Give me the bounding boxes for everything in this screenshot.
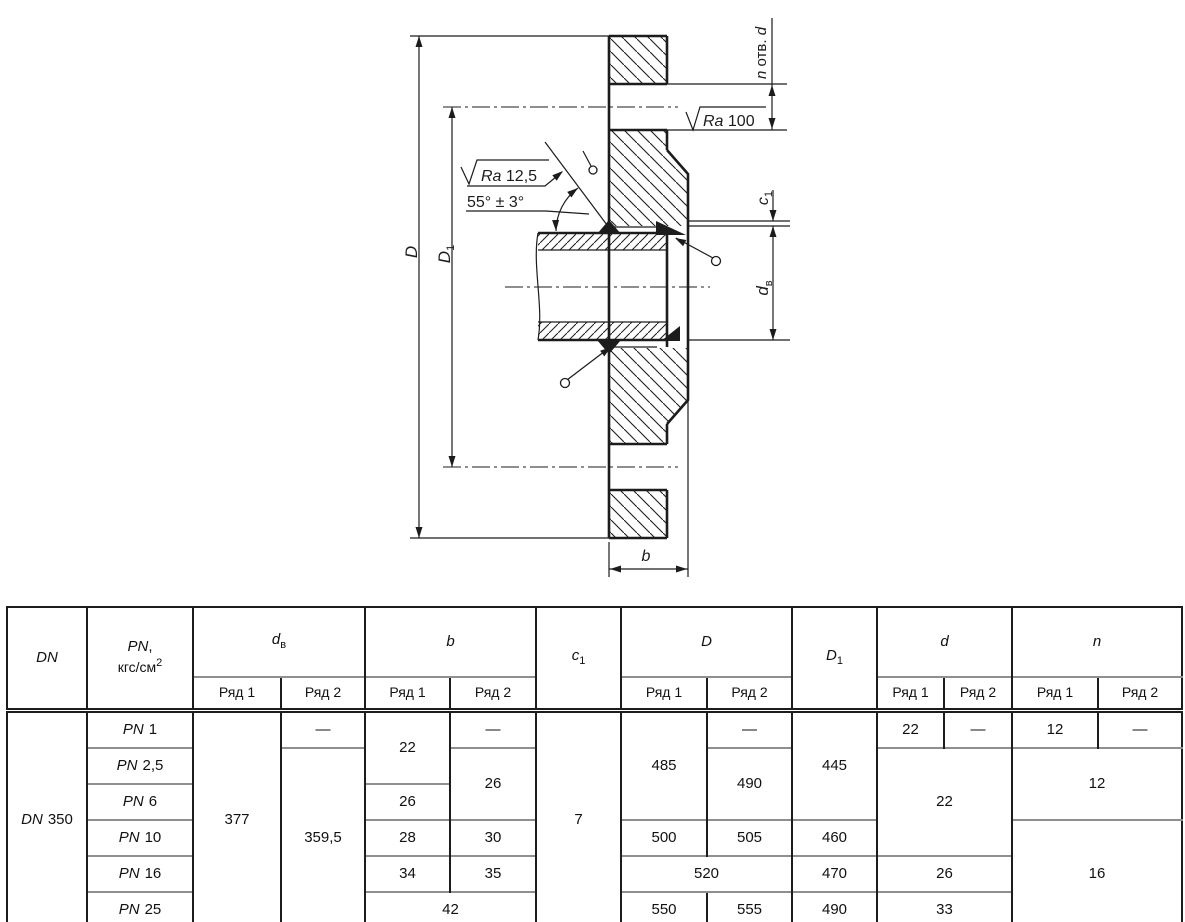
- col-header-pn: PN,кгс/см2: [87, 607, 193, 711]
- cell-pn: PN2,5: [87, 748, 193, 784]
- cell-n-r1: 12: [1012, 711, 1098, 749]
- dim-label-dv: dв: [753, 280, 775, 295]
- subheader-D-ryad1: Ряд 1: [621, 677, 707, 711]
- table-row: DN350 PN1 377 — 22 — 7 485 — 445 22 — 12…: [7, 711, 1182, 749]
- cell-D-r2: 555: [707, 892, 792, 922]
- subheader-d-ryad2: Ряд 2: [944, 677, 1012, 711]
- cell-D1: 460: [792, 820, 877, 856]
- col-header-D1: D1: [792, 607, 877, 711]
- cell-c1: 7: [536, 711, 621, 922]
- cell-pn: PN16: [87, 856, 193, 892]
- subheader-n-ryad1: Ряд 1: [1012, 677, 1098, 711]
- cell-b-r1: 34: [365, 856, 450, 892]
- col-header-c1: c1: [536, 607, 621, 711]
- cell-b-r2: —: [450, 711, 536, 749]
- cell-D-r2: —: [707, 711, 792, 749]
- flange-section-drawing: D D1 n отв. d Ra 100 Ra 12,5 55° ± 3° c1…: [0, 0, 1185, 602]
- col-header-n: n: [1012, 607, 1182, 677]
- bevel-angle-label: 55° ± 3°: [467, 194, 524, 211]
- cell-b-r2: 30: [450, 820, 536, 856]
- cell-dv-r2: 359,5: [281, 748, 365, 922]
- cell-b-r2: 35: [450, 856, 536, 892]
- cell-b-r1: 22: [365, 711, 450, 785]
- subheader-dv-ryad2: Ряд 2: [281, 677, 365, 711]
- cell-D1: 445: [792, 711, 877, 821]
- table-wrapper: DN PN,кгс/см2 dв b c1 D D1 d n Ряд 1 Ряд…: [6, 606, 1183, 922]
- standard-page: D D1 n отв. d Ra 100 Ra 12,5 55° ± 3° c1…: [0, 0, 1185, 922]
- cell-D1: 490: [792, 892, 877, 922]
- subheader-b-ryad2: Ряд 2: [450, 677, 536, 711]
- col-header-b: b: [365, 607, 536, 677]
- subheader-n-ryad2: Ряд 2: [1098, 677, 1182, 711]
- cell-pn: PN6: [87, 784, 193, 820]
- cell-n: 12: [1012, 748, 1182, 820]
- cell-b-r1: 26: [365, 784, 450, 820]
- cell-D-r2: 505: [707, 820, 792, 856]
- flange-hatching: [609, 36, 688, 538]
- cell-d: 33: [877, 892, 1012, 922]
- cell-pn: PN10: [87, 820, 193, 856]
- dim-label-D1: D1: [435, 245, 457, 263]
- cell-D: 520: [621, 856, 792, 892]
- subheader-d-ryad1: Ряд 1: [877, 677, 944, 711]
- cell-dv-r2: —: [281, 711, 365, 749]
- cell-D-r2: 490: [707, 748, 792, 820]
- col-header-D: D: [621, 607, 792, 677]
- cell-pn: PN25: [87, 892, 193, 922]
- col-header-dn: DN: [7, 607, 87, 711]
- cell-D-r1: 550: [621, 892, 707, 922]
- cell-b-r1: 28: [365, 820, 450, 856]
- cell-D-r1: 500: [621, 820, 707, 856]
- roughness-label-ra100: Ra 100: [703, 113, 755, 130]
- cell-pn: PN1: [87, 711, 193, 749]
- dim-label-b: b: [642, 548, 651, 565]
- dim-label-D: D: [402, 246, 421, 258]
- cell-d: 26: [877, 856, 1012, 892]
- cell-n: 16: [1012, 820, 1182, 922]
- cell-dn: DN350: [7, 711, 87, 922]
- dim-label-c1: c1: [755, 191, 775, 205]
- subheader-dv-ryad1: Ряд 1: [193, 677, 281, 711]
- roughness-label-ra125: Ra 12,5: [481, 168, 537, 185]
- flange-dimensions-table: DN PN,кгс/см2 dв b c1 D D1 d n Ряд 1 Ряд…: [6, 606, 1183, 922]
- cell-b: 42: [365, 892, 536, 922]
- cell-n-r2: —: [1098, 711, 1182, 749]
- cell-d-r1: 22: [877, 711, 944, 749]
- subheader-b-ryad1: Ряд 1: [365, 677, 450, 711]
- cell-dv-r1: 377: [193, 711, 281, 922]
- thin-lines: [410, 18, 790, 577]
- cell-d-r2: —: [944, 711, 1012, 749]
- dim-label-n-holes-d: n отв. d: [753, 26, 770, 79]
- subheader-D-ryad2: Ряд 2: [707, 677, 792, 711]
- cell-b-r2: 26: [450, 748, 536, 820]
- col-header-d: d: [877, 607, 1012, 677]
- cell-D1: 470: [792, 856, 877, 892]
- cell-D-r1: 485: [621, 711, 707, 821]
- cell-d: 22: [877, 748, 1012, 856]
- col-header-dv: dв: [193, 607, 365, 677]
